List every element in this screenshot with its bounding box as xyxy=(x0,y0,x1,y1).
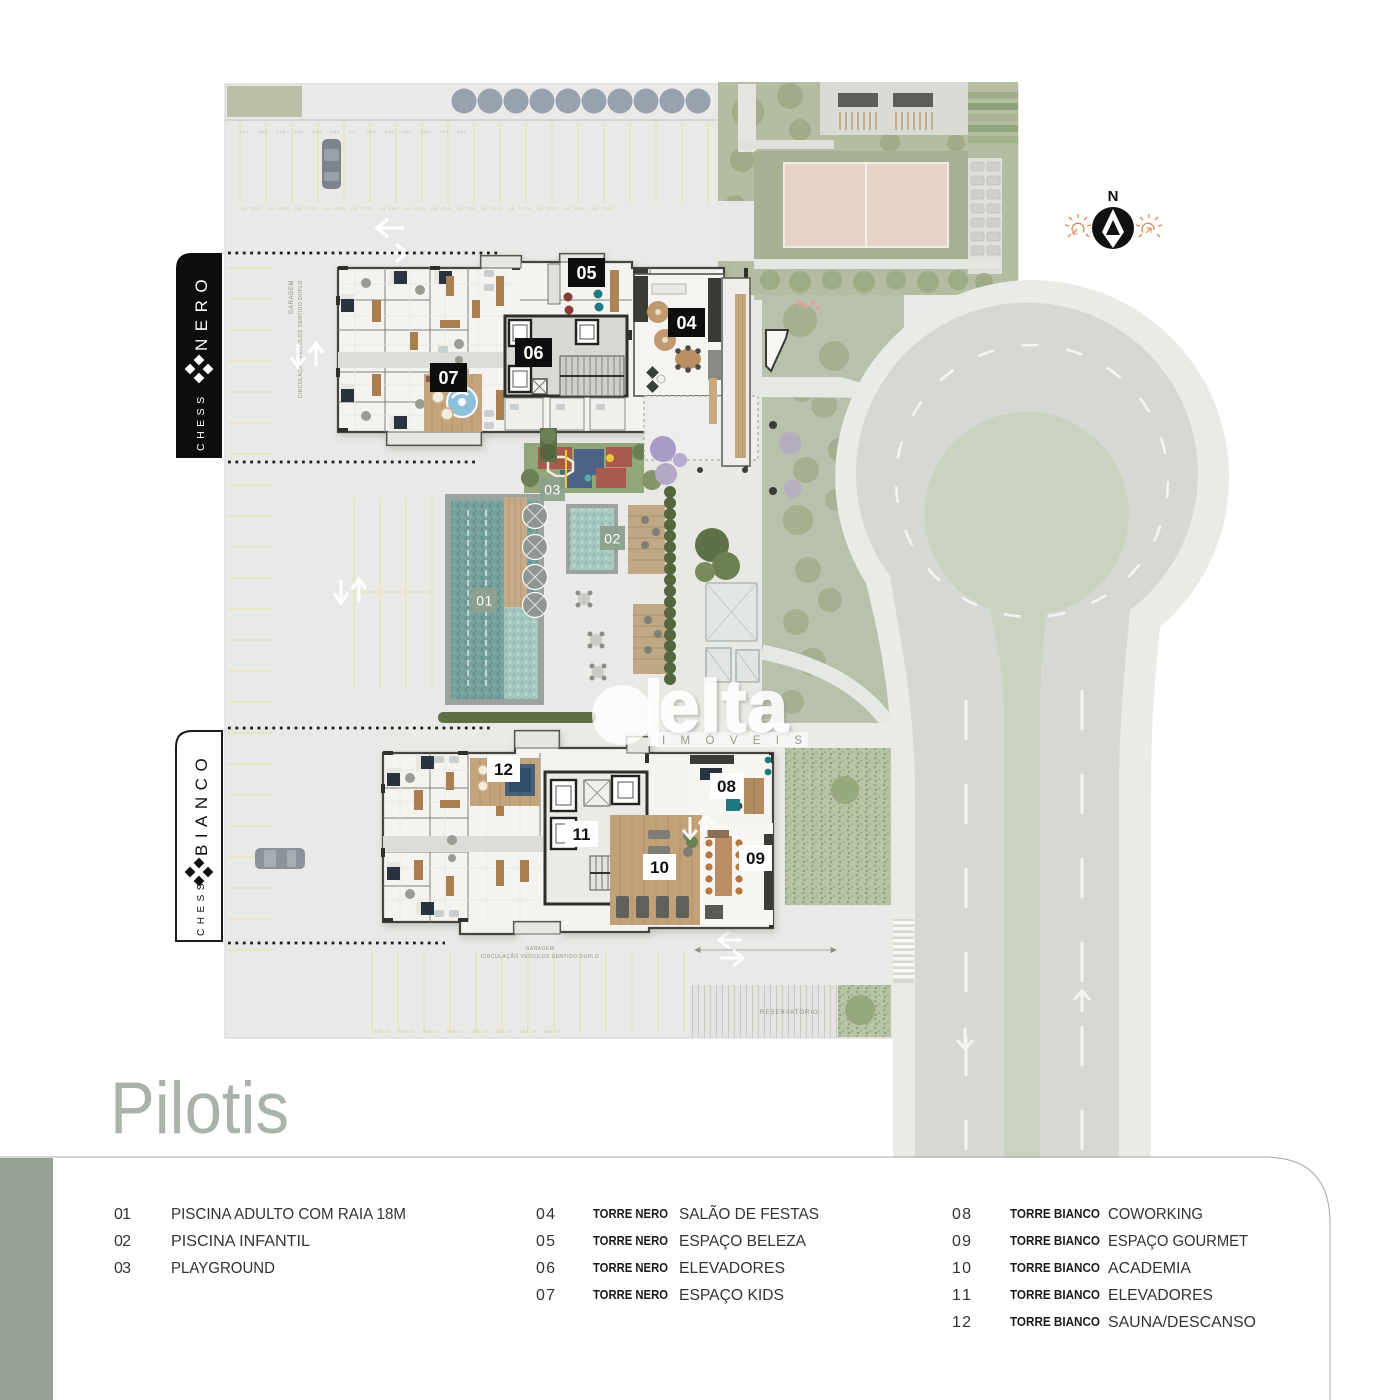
svg-text:TORRE BIANCO: TORRE BIANCO xyxy=(1010,1288,1100,1302)
svg-text:ESPAÇO KIDS: ESPAÇO KIDS xyxy=(679,1287,784,1304)
svg-text:TORRE NERO: TORRE NERO xyxy=(593,1261,668,1275)
svg-text:05: 05 xyxy=(536,1233,555,1250)
svg-text:TORRE BIANCO: TORRE BIANCO xyxy=(1010,1315,1100,1329)
svg-text:N: N xyxy=(1108,188,1119,205)
svg-text:COWORKING: COWORKING xyxy=(1108,1206,1203,1223)
svg-text:07: 07 xyxy=(438,368,458,388)
svg-text:CIRCULAÇÃO VEÍCULOS SENTIDO DU: CIRCULAÇÃO VEÍCULOS SENTIDO DUPLO xyxy=(481,953,599,960)
svg-text:06: 06 xyxy=(523,343,543,363)
svg-text:ELEVADORES: ELEVADORES xyxy=(1108,1287,1213,1304)
svg-text:920 7V 940 7V 960 7V: 920 7V 940 7V 960 7V 980 7V 003 7V 023 7… xyxy=(374,1029,561,1034)
svg-text:PISCINA ADULTO COM RAIA 18M: PISCINA ADULTO COM RAIA 18M xyxy=(171,1206,406,1223)
svg-text:Ap. 164A Ap. 160A Ap. 143A: Ap. 164A Ap. 160A Ap. 143A Ap. 144A Ap. … xyxy=(240,206,614,211)
svg-text:02: 02 xyxy=(114,1233,131,1250)
svg-text:TORRE NERO: TORRE NERO xyxy=(593,1234,668,1248)
svg-text:PLAYGROUND: PLAYGROUND xyxy=(171,1260,275,1277)
svg-text:Pilotis: Pilotis xyxy=(110,1068,289,1149)
svg-text:08: 08 xyxy=(952,1206,971,1223)
svg-text:10: 10 xyxy=(952,1260,971,1277)
svg-text:GARAGEM: GARAGEM xyxy=(525,946,554,952)
svg-text:CHESS: CHESS xyxy=(196,879,207,936)
svg-text:TORRE BIANCO: TORRE BIANCO xyxy=(1010,1261,1100,1275)
svg-text:08: 08 xyxy=(717,777,736,796)
svg-text:05: 05 xyxy=(576,263,596,283)
svg-text:11: 11 xyxy=(573,825,591,844)
svg-text:TORRE BIANCO: TORRE BIANCO xyxy=(1010,1207,1100,1221)
svg-text:TORRE BIANCO: TORRE BIANCO xyxy=(1010,1234,1100,1248)
svg-text:09: 09 xyxy=(746,849,765,868)
svg-text:GARAGEM: GARAGEM xyxy=(289,280,295,314)
svg-text:01: 01 xyxy=(476,593,493,609)
svg-text:04: 04 xyxy=(676,313,696,333)
svg-text:ELEVADORES: ELEVADORES xyxy=(679,1260,785,1277)
svg-text:12: 12 xyxy=(494,760,513,779)
svg-text:CHESS: CHESS xyxy=(195,392,207,451)
svg-text:ESPAÇO GOURMET: ESPAÇO GOURMET xyxy=(1108,1233,1248,1250)
svg-text:NERO: NERO xyxy=(192,272,211,351)
svg-text:10: 10 xyxy=(650,858,669,877)
svg-text:ESPAÇO BELEZA: ESPAÇO BELEZA xyxy=(679,1233,806,1250)
svg-text:ACADEMIA: ACADEMIA xyxy=(1108,1260,1191,1277)
svg-text:01: 01 xyxy=(114,1206,131,1223)
svg-text:07: 07 xyxy=(536,1287,555,1304)
svg-text:03: 03 xyxy=(114,1260,131,1277)
svg-text:02: 02 xyxy=(604,531,621,547)
svg-text:04: 04 xyxy=(536,1206,555,1223)
svg-text:241 242 243 244 24: 241 242 243 244 245 246 247 248 249 250 … xyxy=(240,129,467,134)
svg-text:CIRCULAÇÃO VEÍCULOS SENTIDO DU: CIRCULAÇÃO VEÍCULOS SENTIDO DUPLO xyxy=(297,280,304,398)
svg-text:RESERVATÓRIO: RESERVATÓRIO xyxy=(760,1009,819,1016)
svg-text:BIANCO: BIANCO xyxy=(192,752,211,856)
svg-text:PISCINA INFANTIL: PISCINA INFANTIL xyxy=(171,1233,310,1250)
svg-text:09: 09 xyxy=(952,1233,971,1250)
svg-text:TORRE NERO: TORRE NERO xyxy=(593,1288,668,1302)
svg-text:SALÃO DE FESTAS: SALÃO DE FESTAS xyxy=(679,1203,819,1223)
svg-text:06: 06 xyxy=(536,1260,555,1277)
svg-text:SAUNA/DESCANSO: SAUNA/DESCANSO xyxy=(1108,1314,1256,1331)
svg-text:12: 12 xyxy=(952,1314,971,1331)
svg-text:11: 11 xyxy=(952,1287,971,1304)
svg-text:03: 03 xyxy=(544,482,561,498)
svg-text:TORRE NERO: TORRE NERO xyxy=(593,1207,668,1221)
